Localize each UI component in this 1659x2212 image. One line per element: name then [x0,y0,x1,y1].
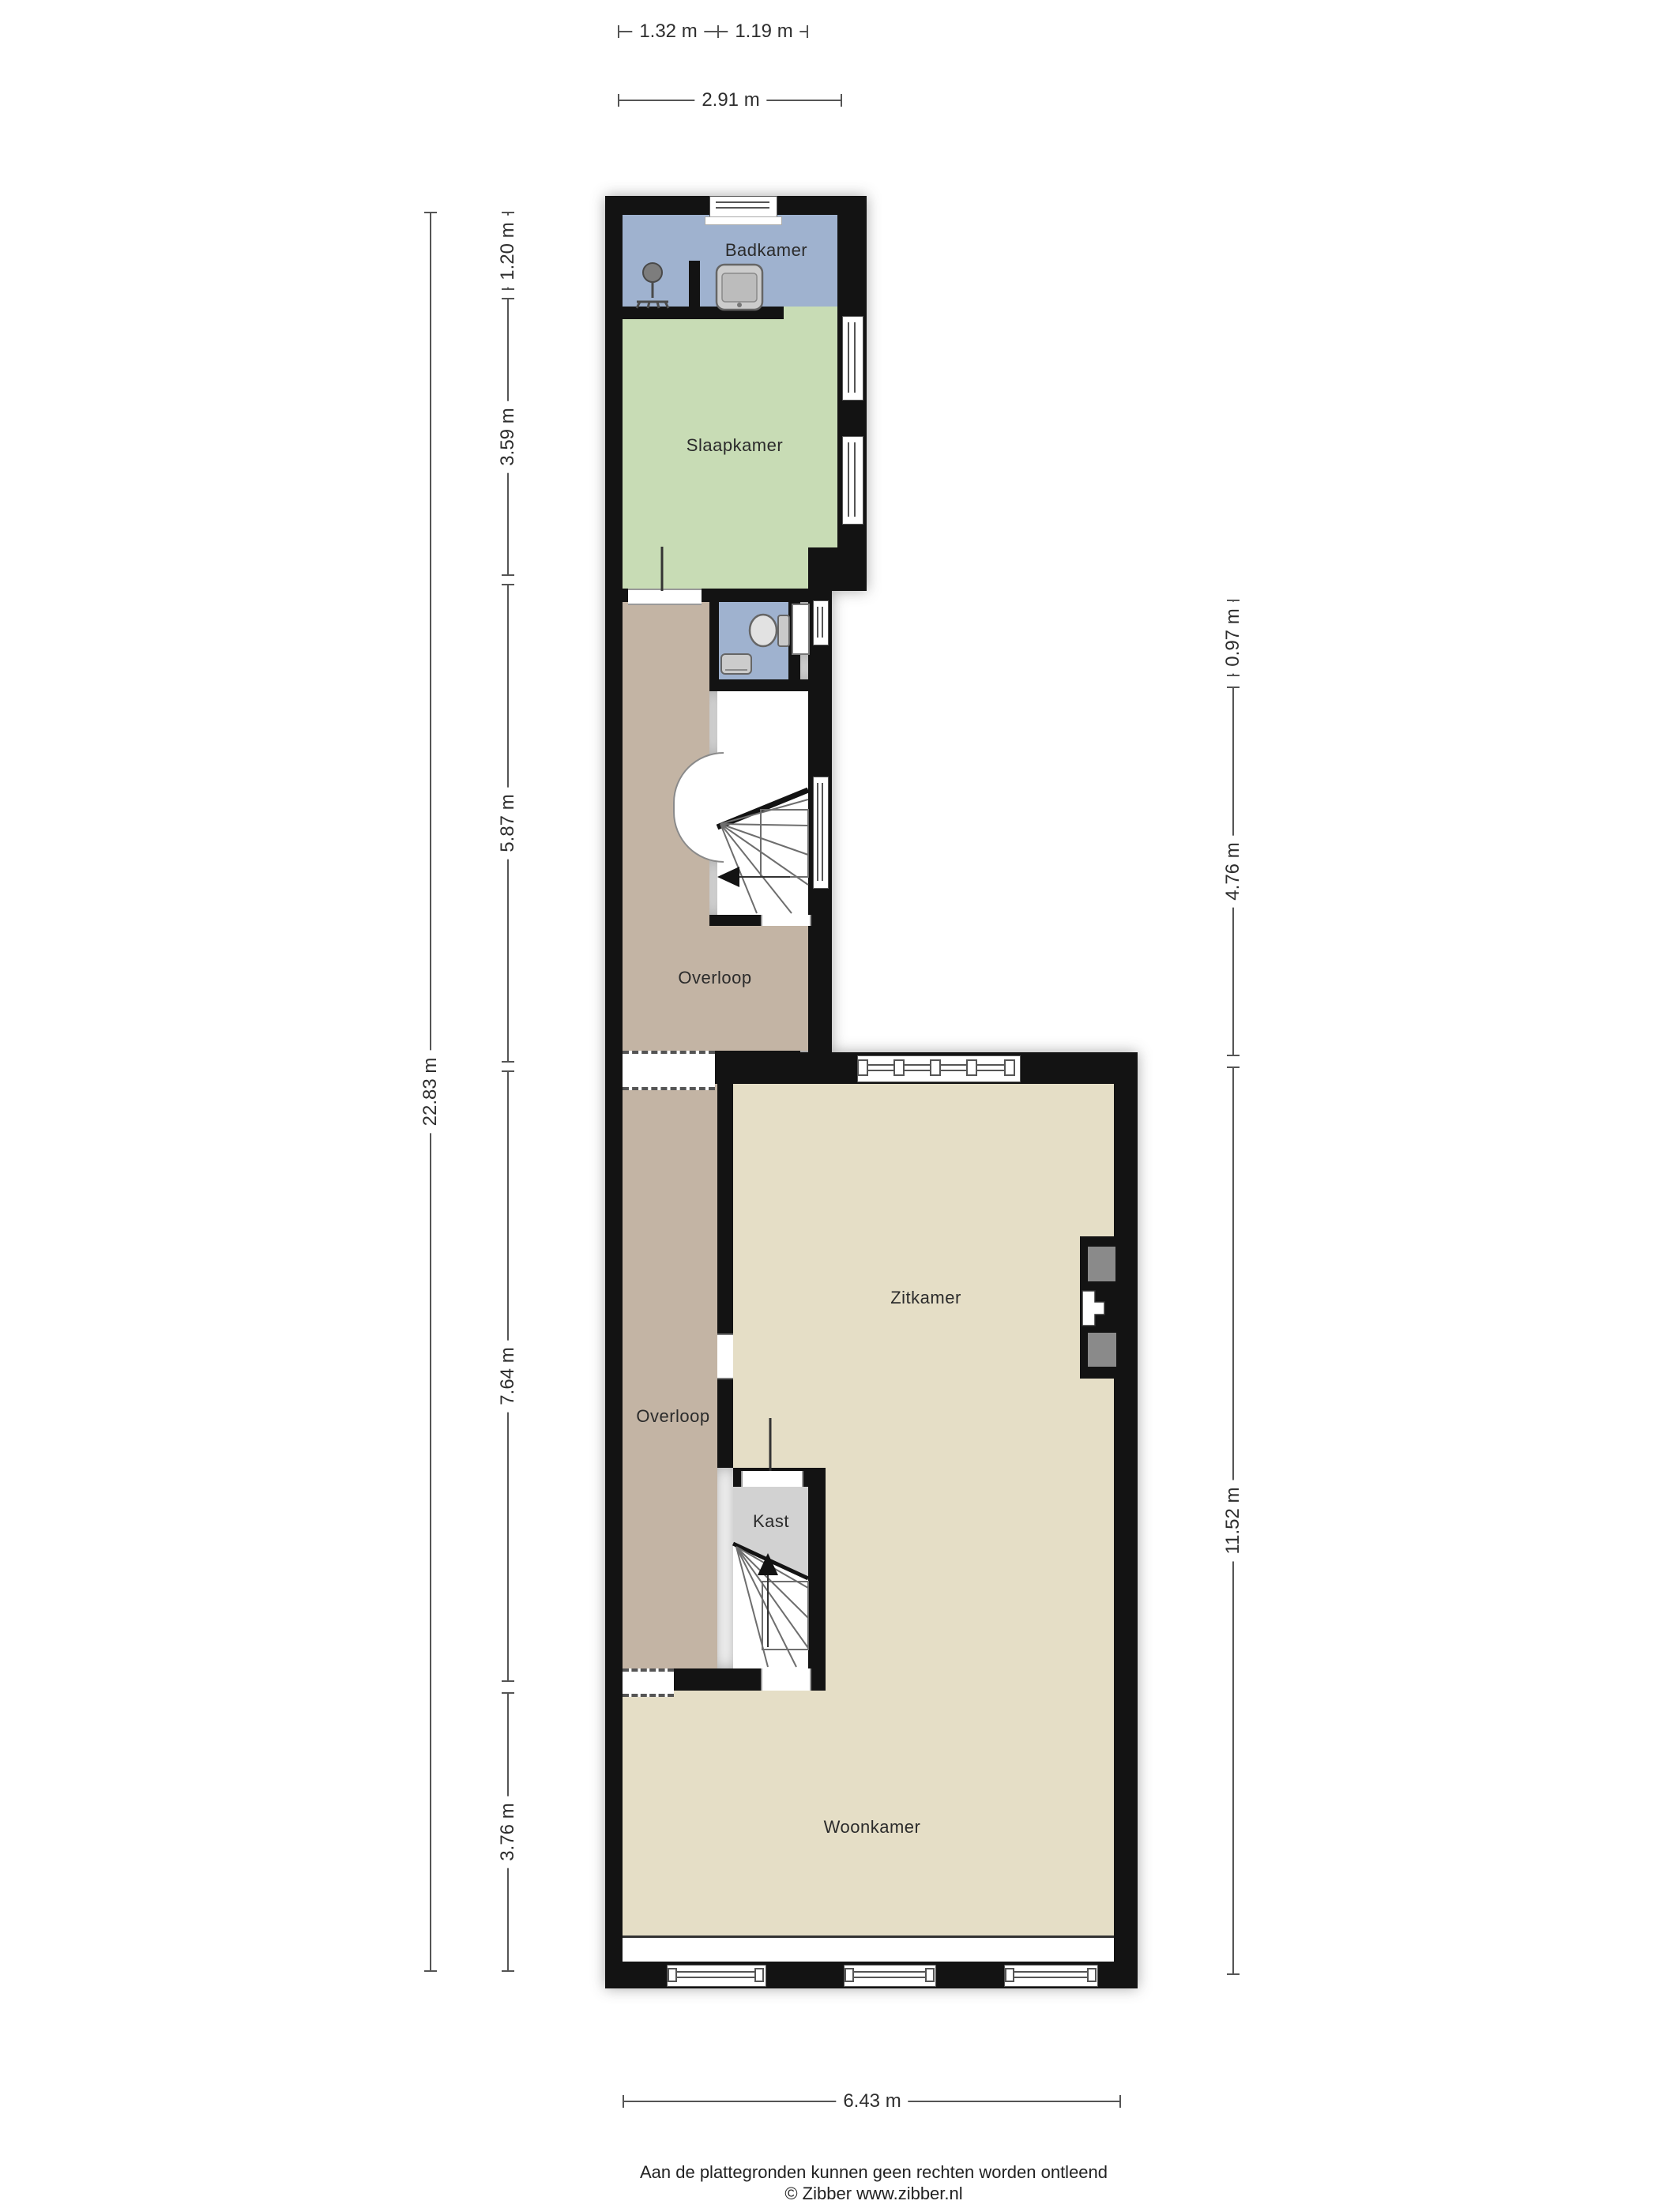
door-leaf-lines [662,547,770,1471]
toilet-basin-icon [721,654,751,674]
dim-tick [807,25,808,38]
dim-label-376: 3.76 m [497,1796,519,1868]
dim-tick [502,298,514,299]
dim-label-132: 1.32 m [632,21,704,43]
dim-label-587: 5.87 m [497,787,519,859]
stairs-upper-icon [717,790,808,913]
dim-tick [1227,687,1240,688]
dim-tick [502,1970,514,1972]
dim-tick [502,574,514,576]
footer-disclaimer: Aan de plattegronden kunnen geen rechten… [479,2161,1269,2183]
floorplan-page: Badkamer Slaapkamer Overloop Zitkamer Ov… [0,0,1659,2212]
mullion-squares [668,1060,1096,1981]
room-label-slaapkamer: Slaapkamer [687,435,783,456]
sink-icon [717,265,762,310]
dim-tick [502,1070,514,1072]
dim-tick [502,1680,514,1682]
dim-tick [1119,2095,1121,2108]
footer-credit: © Zibber www.zibber.nl [479,2183,1269,2204]
dim-tick [424,212,437,213]
dim-label-764: 7.64 m [497,1340,519,1412]
dim-label-291: 2.91 m [694,89,766,111]
dim-label-120: 1.20 m [497,215,519,287]
dim-tick [1227,1066,1240,1068]
dim-tick [502,288,514,290]
dim-tick [841,94,842,107]
dim-label-643: 6.43 m [836,2090,908,2112]
dim-tick [502,1061,514,1063]
room-label-overloop-boven: Overloop [678,968,751,988]
room-label-kast: Kast [753,1511,789,1532]
dim-label-2283: 22.83 m [419,1051,442,1134]
dim-tick [623,2095,624,2108]
glazing-lines [673,202,1090,1977]
stairs-lower-icon [733,1544,808,1667]
dim-tick [502,212,514,213]
dim-tick [1227,1973,1240,1975]
room-label-woonkamer: Woonkamer [824,1817,921,1838]
dim-label-476: 4.76 m [1222,835,1244,907]
dim-tick [1227,1055,1240,1056]
shower-icon [637,263,668,308]
floorplan-drawing [0,0,1659,2212]
dim-tick [618,25,619,38]
dim-tick [618,94,619,107]
dim-label-1152: 11.52 m [1222,1480,1244,1562]
dim-tick [502,1692,514,1694]
dim-tick [424,1970,437,1972]
dim-label-119: 1.19 m [728,21,799,43]
room-label-zitkamer: Zitkamer [890,1288,961,1308]
badkamer-partition-wall [689,261,700,307]
dim-tick [502,584,514,585]
dim-label-097: 0.97 m [1222,601,1244,673]
fireplace-niche [1082,1291,1104,1326]
plan-linework [0,0,1659,2212]
toilet-icon [750,615,789,646]
dim-tick [1227,675,1240,676]
footer-text: Aan de plattegronden kunnen geen rechten… [479,2161,1269,2204]
dim-label-359: 3.59 m [497,401,519,472]
room-label-badkamer: Badkamer [725,240,807,261]
room-label-overloop-beneden: Overloop [636,1406,709,1427]
